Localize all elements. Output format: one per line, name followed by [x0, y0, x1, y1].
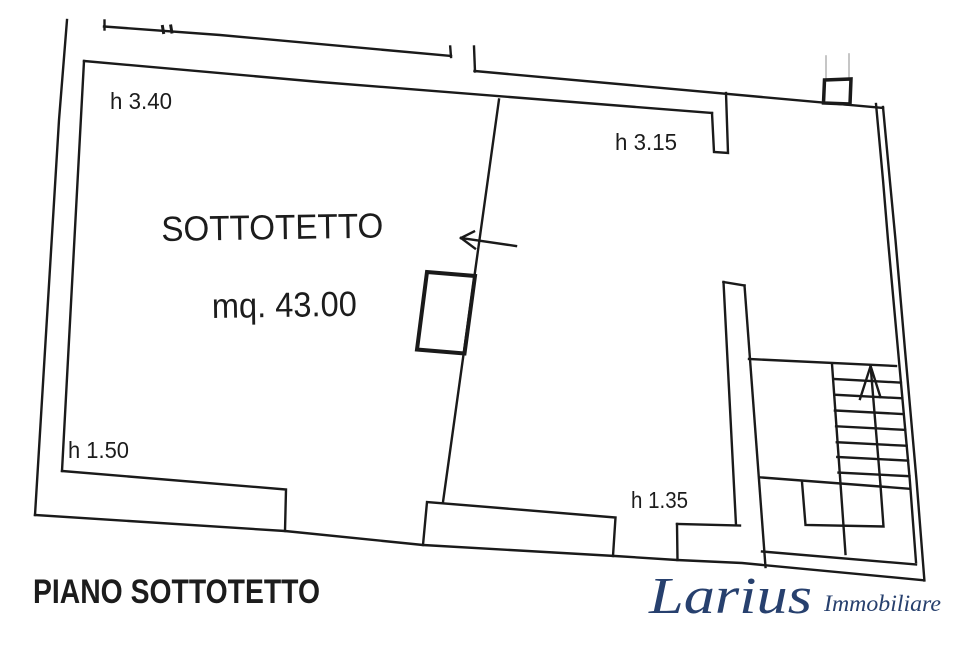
svg-text:h 3.40: h 3.40	[110, 88, 172, 114]
svg-text:SOTTOTETTO: SOTTOTETTO	[161, 207, 384, 249]
svg-text:h 1.50: h 1.50	[68, 437, 129, 463]
svg-text:Larius: Larius	[648, 568, 812, 625]
svg-text:Immobiliare: Immobiliare	[823, 591, 941, 616]
svg-text:h 3.15: h 3.15	[615, 129, 677, 155]
svg-text:h 1.35: h 1.35	[631, 487, 688, 513]
svg-text:mq. 43.00: mq. 43.00	[212, 285, 358, 326]
svg-text:PIANO SOTTOTETTO: PIANO SOTTOTETTO	[33, 573, 320, 611]
